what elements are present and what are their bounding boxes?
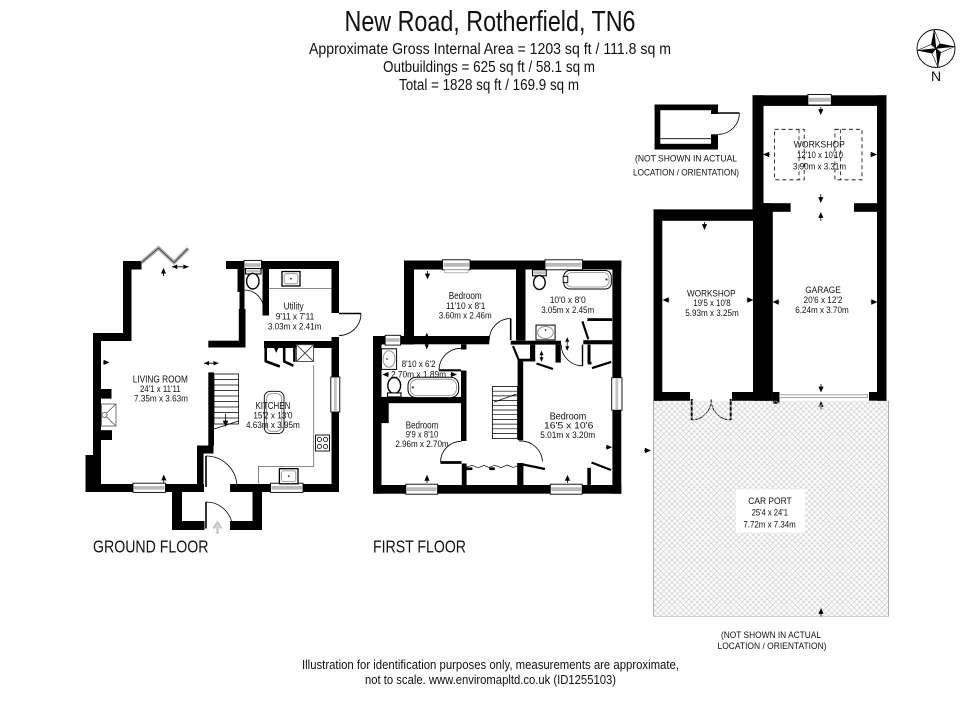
svg-text:25'4 x 24'1: 25'4 x 24'1 xyxy=(752,508,788,519)
svg-text:Total = 1828 sq ft / 169.9 sq: Total = 1828 sq ft / 169.9 sq m xyxy=(399,77,579,94)
svg-text:5.01m x 3.20m: 5.01m x 3.20m xyxy=(540,430,595,441)
svg-text:CAR PORT: CAR PORT xyxy=(748,496,792,507)
svg-text:FIRST FLOOR: FIRST FLOOR xyxy=(373,537,466,557)
svg-text:Illustration for identificatio: Illustration for identification purposes… xyxy=(302,658,679,672)
svg-text:3.03m x 2.41m: 3.03m x 2.41m xyxy=(268,321,322,332)
svg-text:3.90m x 3.31m: 3.90m x 3.31m xyxy=(793,162,846,173)
svg-text:7.35m x 3.63m: 7.35m x 3.63m xyxy=(134,394,188,405)
svg-text:2.96m x 2.70m: 2.96m x 2.70m xyxy=(395,439,448,450)
svg-text:GROUND FLOOR: GROUND FLOOR xyxy=(93,537,209,557)
svg-text:12'10 x 10'10: 12'10 x 10'10 xyxy=(797,150,843,161)
svg-text:3.05m x 2.45m: 3.05m x 2.45m xyxy=(541,305,594,316)
svg-text:(NOT SHOWN IN ACTUAL: (NOT SHOWN IN ACTUAL xyxy=(721,630,821,641)
svg-text:New Road, Rotherfield, TN6: New Road, Rotherfield, TN6 xyxy=(345,6,636,38)
svg-text:7.72m x 7.34m: 7.72m x 7.34m xyxy=(743,519,795,530)
svg-text:5.93m x 3.25m: 5.93m x 3.25m xyxy=(685,308,739,319)
svg-text:not to scale. www.enviromapltd: not to scale. www.enviromapltd.co.uk (ID… xyxy=(365,673,616,687)
svg-text:3.60m x 2.46m: 3.60m x 2.46m xyxy=(439,311,492,322)
svg-text:(NOT SHOWN IN ACTUAL: (NOT SHOWN IN ACTUAL xyxy=(635,154,737,165)
svg-text:Approximate Gross Internal Are: Approximate Gross Internal Area = 1203 s… xyxy=(309,41,671,58)
svg-text:WORKSHOP: WORKSHOP xyxy=(794,140,845,151)
svg-text:2.70m x 1.89m: 2.70m x 1.89m xyxy=(391,369,446,380)
svg-text:N: N xyxy=(931,68,941,84)
svg-text:LOCATION / ORIENTATION): LOCATION / ORIENTATION) xyxy=(718,641,827,652)
svg-text:4.63m x 3.95m: 4.63m x 3.95m xyxy=(246,420,300,431)
svg-text:6.24m x 3.70m: 6.24m x 3.70m xyxy=(795,305,849,316)
svg-text:Outbuildings = 625 sq ft / 58.: Outbuildings = 625 sq ft / 58.1 sq m xyxy=(383,59,595,76)
svg-text:LOCATION / ORIENTATION): LOCATION / ORIENTATION) xyxy=(633,168,739,179)
